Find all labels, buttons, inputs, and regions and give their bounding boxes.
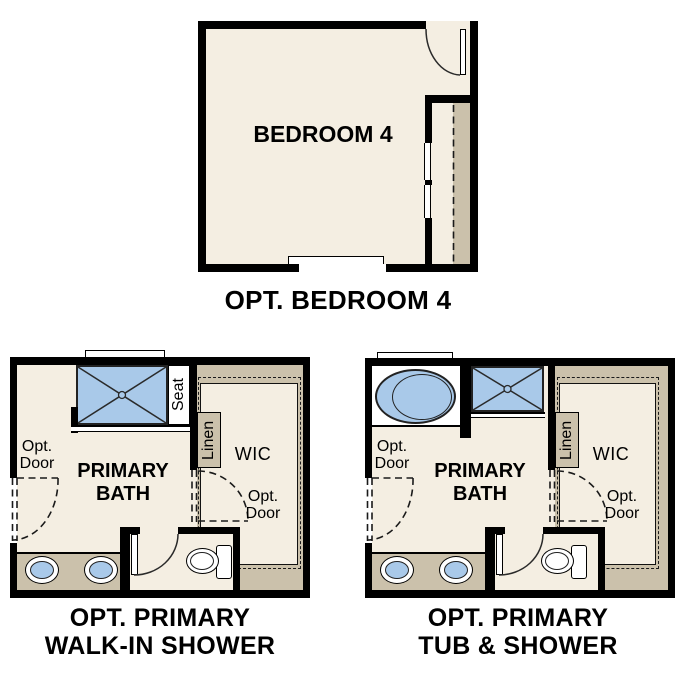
shower-threshold	[471, 412, 545, 418]
wall-bottom	[10, 590, 310, 598]
opt-door-mid-line2: Door	[237, 505, 289, 522]
wall-left-lower	[10, 543, 17, 598]
wc-door-leaf	[131, 534, 138, 575]
wall-right	[303, 357, 310, 598]
wall-left-lower	[365, 543, 372, 598]
wc-wall-top-left	[120, 527, 140, 534]
walkin-caption-line1: OPT. PRIMARY	[0, 604, 320, 632]
sink-basin	[89, 561, 113, 579]
wall-right	[668, 358, 675, 598]
tub-caption-line2: TUB & SHOWER	[358, 632, 678, 660]
tub-shower-wall-stub	[460, 358, 471, 438]
walk-in-shower	[76, 365, 168, 425]
opt-door-label-left: Opt. Door	[14, 438, 60, 472]
walkin-caption-line2: WALK-IN SHOWER	[0, 632, 320, 660]
wall-top	[365, 358, 675, 366]
opt-door-mid-line1: Opt.	[237, 488, 289, 505]
linen-closet: Linen	[197, 412, 221, 468]
bath-room-label: PRIMARY BATH	[63, 460, 183, 506]
tub-shower-plan: Linen	[365, 350, 675, 598]
closet-wall-top	[425, 95, 478, 103]
wc-wall-top-right	[178, 527, 240, 534]
tub-inner	[392, 374, 452, 420]
opt-door-left-line2: Door	[369, 455, 415, 472]
bath-room-label: PRIMARY BATH	[420, 460, 540, 506]
wall-left	[198, 21, 206, 272]
tub-caption: OPT. PRIMARY TUB & SHOWER	[358, 604, 678, 660]
sink-basin	[30, 561, 54, 579]
bath-room-label-line2: BATH	[63, 483, 183, 506]
closet-bypass-door	[424, 185, 431, 218]
wc-door-leaf	[496, 534, 503, 575]
closet-wall-lower	[425, 218, 432, 264]
wc-wall-left	[485, 527, 495, 598]
wall-right	[470, 21, 478, 272]
wc-wall-top-right	[543, 527, 605, 534]
wic-label: WIC	[223, 444, 283, 465]
bedroom4-plan: BEDROOM 4	[198, 21, 478, 281]
sink-basin	[385, 561, 409, 579]
bath-room-label-line1: PRIMARY	[420, 460, 540, 483]
toilet-bowl-inner	[545, 552, 569, 570]
toilet-bowl-inner	[190, 552, 214, 570]
opt-door-left-line1: Opt.	[369, 438, 415, 455]
walk-in-shower-plan: Linen	[10, 350, 310, 598]
linen-closet: Linen	[555, 412, 579, 468]
opt-door-label-mid: Opt. Door	[237, 488, 289, 522]
shower	[471, 366, 544, 412]
wic-partition-wall	[548, 366, 555, 470]
wc-wall-right	[233, 527, 240, 598]
opt-door-mid-line2: Door	[596, 505, 648, 522]
walkin-caption: OPT. PRIMARY WALK-IN SHOWER	[0, 604, 320, 660]
tub-caption-line1: OPT. PRIMARY	[358, 604, 678, 632]
entry-door-leaf	[460, 29, 466, 75]
opt-door-label-mid: Opt. Door	[596, 488, 648, 522]
door-opening	[426, 21, 470, 29]
wc-wall-left	[120, 527, 130, 598]
opt-door-label-left: Opt. Door	[369, 438, 415, 472]
wc-wall-top-left	[485, 527, 505, 534]
floorplan-sheet: BEDROOM 4 OPT. BEDROOM 4 Linen	[0, 0, 687, 687]
wall-top	[198, 21, 426, 29]
opt-door-left-line1: Opt.	[14, 438, 60, 455]
wc-wall-right	[598, 527, 605, 598]
window-sill	[299, 264, 386, 277]
bath-room-label-line2: BATH	[420, 483, 540, 506]
sink-basin	[444, 561, 468, 579]
shower-threshold	[71, 425, 190, 432]
wall-bottom	[365, 590, 675, 598]
bedroom-caption: OPT. BEDROOM 4	[173, 286, 503, 314]
opt-door-left-line2: Door	[14, 455, 60, 472]
bath-room-label-line1: PRIMARY	[63, 460, 183, 483]
closet-bypass-door	[424, 143, 431, 180]
closet-floor	[453, 103, 470, 264]
wic-label: WIC	[581, 444, 641, 465]
wall-top	[10, 357, 310, 365]
opt-door-mid-line1: Opt.	[596, 488, 648, 505]
bedroom-room-label: BEDROOM 4	[218, 121, 428, 148]
wic-partition-wall	[190, 365, 197, 470]
seat-label: Seat	[168, 365, 190, 425]
